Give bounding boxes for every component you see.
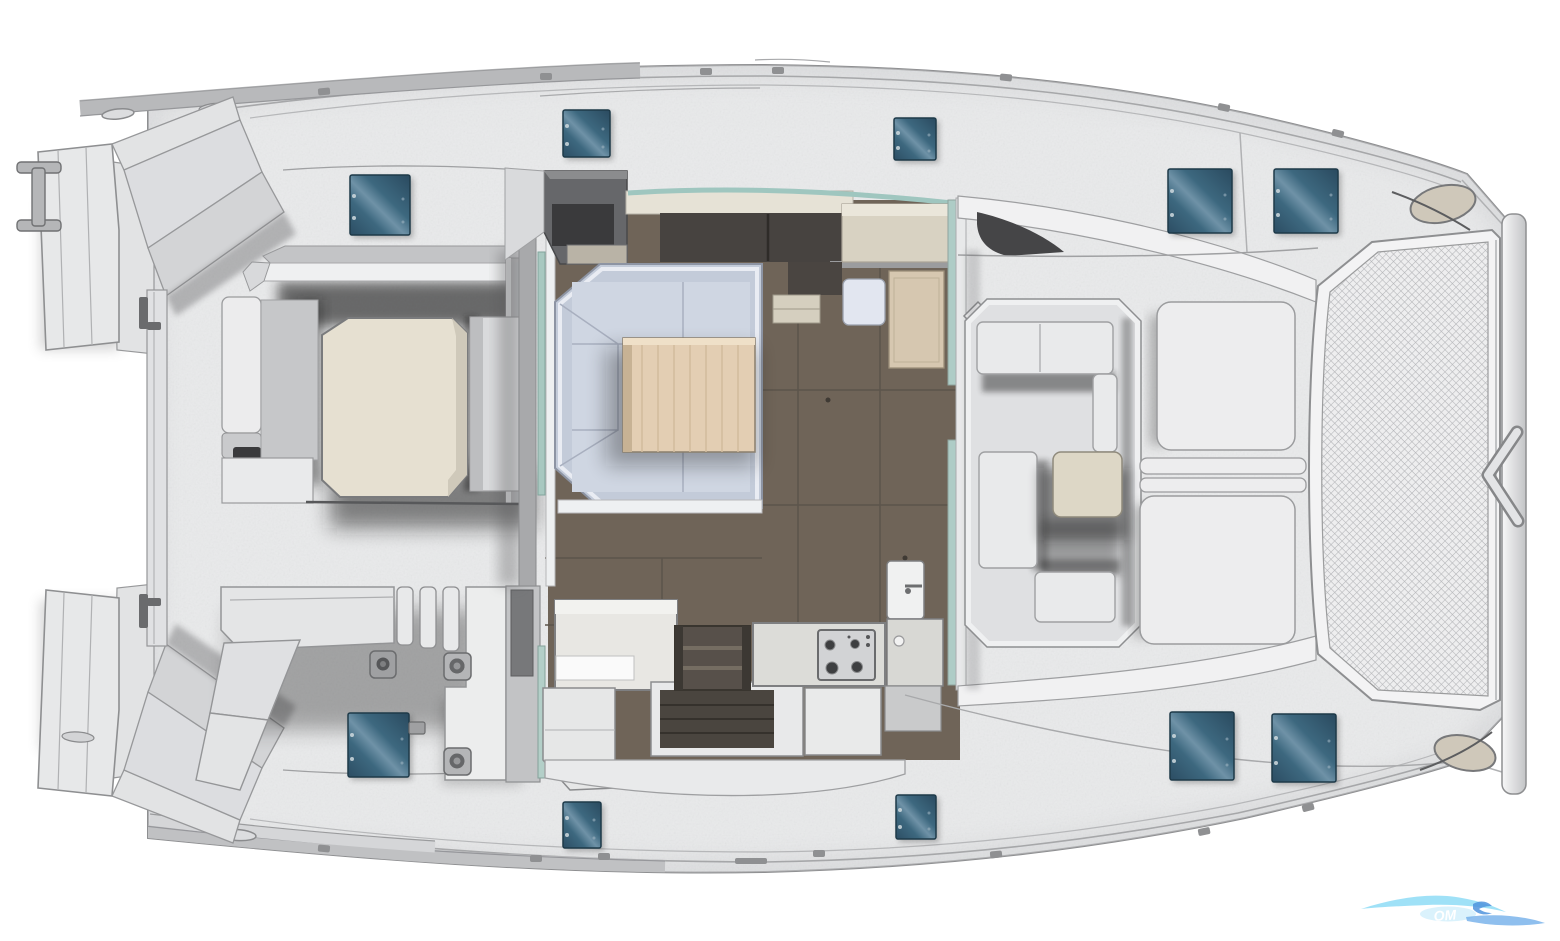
svg-text:OM: OM (1433, 906, 1457, 924)
